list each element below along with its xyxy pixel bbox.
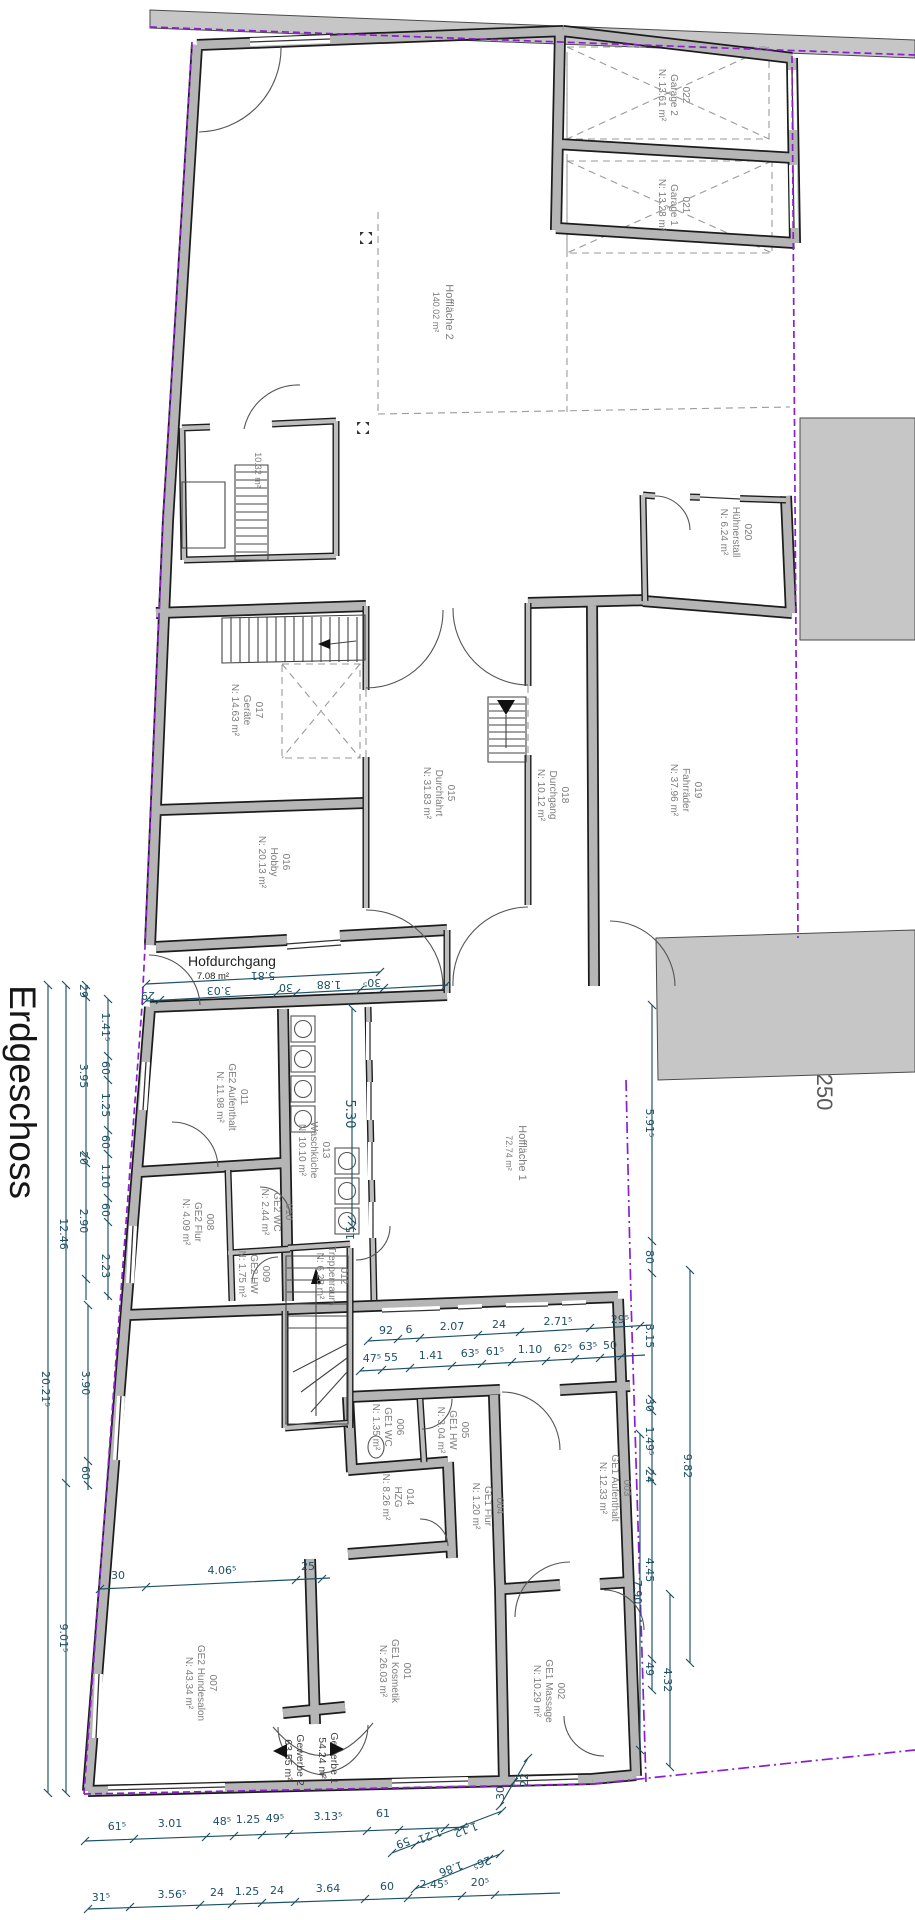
room-id: 021: [680, 197, 691, 214]
dim-value: 60: [99, 1135, 112, 1149]
dim-value: 5.81: [251, 969, 276, 982]
room-id: 009: [260, 1266, 271, 1283]
room-area: N: 2.44 m²: [259, 1189, 270, 1236]
room-id: 003: [621, 1480, 632, 1497]
room-label-019: 019 Fahrräder N: 37.96 m²: [668, 764, 703, 817]
room-id: 017: [253, 702, 264, 719]
dim-value: 61: [376, 1807, 390, 1820]
dim-value: 63⁵: [579, 1340, 597, 1353]
dim-value: 4.32: [661, 1668, 674, 1693]
page-title: Erdgeschoss: [2, 985, 43, 1199]
column-marker-1-x: [362, 234, 370, 242]
floorplan-drawing: Erdgeschoss 250 022 Garage 2 N: 13.61 m²…: [0, 0, 915, 1920]
dim-value: 20.21⁵: [39, 1371, 52, 1407]
room-id: 019: [692, 782, 703, 799]
room-area: N: 6.24 m²: [718, 509, 729, 556]
room-id: 014: [404, 1489, 415, 1506]
room-name: GE1 Massage: [543, 1659, 554, 1723]
room-name: GE1 Flur: [482, 1486, 493, 1527]
gate-double-line: [286, 940, 341, 949]
room-label-005: 005 GE1 HW N: 3.04 m²: [435, 1407, 470, 1454]
dim-value: 1.25: [235, 1885, 260, 1898]
washing-machine-drum-icon: [339, 1153, 356, 1170]
dim-value: 22: [518, 1773, 531, 1787]
room-area: N: 3.04 m²: [435, 1407, 446, 1454]
dim-value: 29: [141, 989, 155, 1002]
room-label-011: 011 GE2 Aufenthalt N: 11.98 m²: [214, 1063, 249, 1130]
room-id: 012: [338, 1268, 349, 1285]
dim-value: 1.41⁵: [99, 1013, 112, 1042]
dim-value: 3.95: [77, 1064, 90, 1089]
dim-value: 92: [379, 1324, 393, 1337]
room-name: Hühnerstall: [730, 507, 741, 558]
dim-value: 1.49⁵: [643, 1427, 656, 1456]
dim-value: 9.01⁵: [57, 1624, 70, 1653]
room-name: GE1 WC: [382, 1407, 393, 1446]
dim-value: 63⁵: [461, 1347, 479, 1360]
room-name: GE1 HW: [447, 1410, 458, 1450]
room-area: N: 6.28 m²: [314, 1253, 325, 1300]
room-area: N: 10.12 m²: [535, 769, 546, 822]
room-id: 010: [283, 1204, 294, 1221]
door-swing-arcs: [149, 46, 690, 1775]
dim-value: 3.01: [158, 1817, 183, 1830]
room-name: Garage 1: [668, 184, 679, 226]
area-label-gewerbe2: Gewerbe 2 63.55 m²: [282, 1734, 306, 1786]
dim-value: 59: [394, 1834, 412, 1851]
room-id: 015: [445, 785, 456, 802]
room-area: N: 13.61 m²: [656, 69, 667, 122]
room-label-013: 013 Waschküche N: 10.10 m²: [296, 1122, 331, 1179]
room-name: GE2 HW: [248, 1254, 259, 1294]
room-label-012: 012 Treppenraum N: 6.28 m²: [314, 1246, 349, 1306]
room-name: Geräte: [241, 695, 252, 726]
room-id: 001: [401, 1663, 412, 1680]
area-name: Gewerbe 2: [294, 1734, 306, 1786]
plan-title: Erdgeschoss: [2, 985, 43, 1199]
room-label-002: 002 GE1 Massage N: 10.29 m²: [531, 1659, 566, 1723]
area-value: 54.24 m²: [316, 1737, 328, 1779]
dim-value: 60: [99, 1203, 112, 1217]
dim-value: 47⁵: [363, 1352, 381, 1365]
dim-value: 49: [643, 1662, 656, 1676]
area-value: 63.55 m²: [282, 1739, 294, 1781]
dim-value: 1.41: [419, 1349, 444, 1362]
dim-value: 1.10: [99, 1164, 112, 1189]
room-area: N: 10.29 m²: [531, 1665, 542, 1718]
room-name: GE2 Hundesalon: [195, 1645, 206, 1721]
area-label-hofflaeche2: Hoffläche 2 140.02 m²: [431, 284, 455, 339]
dim-value: 24: [210, 1886, 224, 1899]
dim-value: 15: [344, 1226, 357, 1240]
washing-machine-drum-icon: [339, 1183, 356, 1200]
room-name: Durchgang: [547, 771, 558, 820]
entrance-arrow-gewerbe2: [273, 1744, 287, 1758]
area-value-hofdurchgang: 7.08 m²: [197, 971, 229, 982]
room-area: N: 1.20 m²: [470, 1483, 481, 1530]
dim-value: 30: [494, 1786, 507, 1800]
dim-value: 9.82: [681, 1454, 694, 1479]
room-area: N: 26.03 m²: [377, 1645, 388, 1698]
dim-value: 2.07: [440, 1320, 465, 1333]
dim-value: 3.90: [79, 1371, 92, 1396]
dim-value: 12.46: [57, 1218, 70, 1250]
room-id: 011: [238, 1089, 249, 1105]
room-name: HZG: [392, 1486, 403, 1507]
room-label-017: 017 Geräte N: 14.63 m²: [229, 684, 264, 737]
washing-machine-drum-icon: [295, 1021, 312, 1038]
area-label-abstell: 10.32 m²: [253, 452, 263, 488]
room-area: N: 12.33 m²: [597, 1462, 608, 1515]
room-id: 004: [494, 1498, 505, 1515]
room-name: Treppenraum: [326, 1246, 337, 1306]
dim-value: 3.03: [207, 984, 232, 997]
dim-value: 1.10: [518, 1343, 543, 1356]
room-label-006: 006 GE1 WC N: 1.35 m²: [370, 1404, 405, 1451]
stair-arrow-2: [497, 700, 515, 715]
room-id: 018: [559, 787, 570, 804]
dim-value: 4.06⁵: [208, 1564, 237, 1577]
dims-hundesalon: 30 4.06⁵ 25: [111, 1560, 315, 1582]
room-name: GE2 WC: [271, 1192, 282, 1231]
dim-value: 60: [79, 1466, 92, 1480]
area-name: Gewerbe 1: [328, 1732, 340, 1784]
dim-value: 29: [77, 984, 90, 998]
room-id: 002: [555, 1683, 566, 1700]
dim-value: 30: [643, 1398, 656, 1412]
room-area: N: 1.35 m²: [370, 1404, 381, 1451]
stair-arrow-1: [318, 639, 330, 649]
courtyard-dashed-boundary: [366, 58, 790, 757]
room-id: 016: [280, 854, 291, 871]
dim-value: 30: [111, 1569, 125, 1582]
room-name: GE1 Aufenthalt: [609, 1454, 620, 1521]
room-name: Hobby: [268, 848, 279, 877]
room-id: 007: [207, 1675, 218, 1692]
room-label-016: 016 Hobby N: 20.13 m²: [256, 836, 291, 889]
room-label-015: 015 Durchfahrt N: 31.83 m²: [421, 767, 456, 820]
room-label-007: 007 GE2 Hundesalon N: 43.34 m²: [183, 1645, 218, 1721]
room-label-001: 001 GE1 Kosmetik N: 26.03 m²: [377, 1639, 412, 1704]
dim-value: 1.86: [437, 1858, 464, 1879]
dims-bottom-row1: 61⁵ 3.01 48⁵ 1.25 49⁵ 3.13⁵ 61: [108, 1807, 390, 1833]
dim-value: 1.12: [452, 1819, 479, 1840]
dim-value: 1.25: [99, 1093, 112, 1118]
washing-machine-drum-icon: [295, 1081, 312, 1098]
dim-value: 3.56⁵: [158, 1888, 187, 1901]
neighbour-slab-right-mid: [656, 930, 915, 1080]
room-name: Durchfahrt: [433, 770, 444, 817]
dim-value: 2.23: [99, 1254, 112, 1279]
room-area: N: 1.75 m²: [236, 1251, 247, 1298]
room-label-020: 020 Hühnerstall N: 6.24 m²: [718, 507, 753, 558]
room-label-009: 009 GE2 HW N: 1.75 m²: [236, 1251, 271, 1298]
area-label-hofdurchgang: Hofdurchgang: [188, 953, 276, 969]
room-area: N: 37.96 m²: [668, 764, 679, 817]
dim-value: 7.90: [631, 1580, 644, 1605]
room-area: N: 11.98 m²: [214, 1071, 225, 1123]
dim-value: 55: [384, 1351, 398, 1364]
dims-court-row2: 47⁵ 55 1.41 63⁵ 61⁵ 1.10 62⁵ 63⁵ 50: [363, 1339, 617, 1365]
room-id: 006: [394, 1419, 405, 1436]
area-name: Hoffläche 2: [443, 284, 455, 339]
room-area: N: 4.09 m²: [180, 1199, 191, 1246]
washing-machine-drum-icon: [295, 1051, 312, 1068]
dim-value: 50: [603, 1339, 617, 1352]
room-area: N: 13.28 m²: [656, 179, 667, 232]
area-value: 72.74 m²: [504, 1135, 514, 1171]
neighbour-buildings: [150, 10, 915, 1080]
dim-value: 24: [643, 1469, 656, 1483]
room-name: GE1 Kosmetik: [389, 1639, 400, 1704]
dim-value: 3.13⁵: [314, 1810, 343, 1823]
dim-value: 2.71⁵: [544, 1315, 573, 1328]
dim-value: 31⁵: [92, 1891, 110, 1904]
area-label-hofflaeche1: Hoffläche 1 72.74 m²: [504, 1125, 528, 1180]
dim-value: 61⁵: [486, 1345, 504, 1358]
room-label-022: 022 Garage 2 N: 13.61 m²: [656, 69, 691, 122]
area-value: 10.32 m²: [253, 452, 263, 488]
dim-value: 24: [492, 1318, 506, 1331]
dim-value: 2.90: [77, 1209, 90, 1234]
dim-value: 24: [270, 1884, 284, 1897]
floorplan-canvas: Erdgeschoss 250 022 Garage 2 N: 13.61 m²…: [0, 0, 915, 1920]
room-id: 005: [459, 1422, 470, 1439]
dim-value: 20⁵: [471, 1876, 489, 1889]
dim-value: 3.15: [643, 1324, 656, 1349]
room-area: N: 10.10 m²: [296, 1124, 307, 1177]
room-area: N: 20.13 m²: [256, 836, 267, 889]
dim-value: 4.45: [643, 1558, 656, 1583]
dim-value: 60: [380, 1880, 394, 1893]
dim-value: 20: [77, 1151, 90, 1165]
neighbour-slab-right-upper: [800, 418, 915, 640]
dim-value: 2.45⁵: [420, 1878, 449, 1891]
dim-value: 30⁵: [363, 976, 381, 989]
room-label-008: 008 GE2 Flur N: 4.09 m²: [180, 1199, 215, 1246]
room-name: Fahrräder: [680, 768, 691, 813]
stair-winder-lines: [293, 1344, 347, 1412]
room-area: N: 8.26 m²: [380, 1474, 391, 1521]
dim-value: 60: [99, 1061, 112, 1075]
area-name: Hoffläche 1: [516, 1125, 528, 1180]
room-label-014: 014 HZG N: 8.26 m²: [380, 1474, 415, 1521]
dim-value: 5.91⁵: [643, 1109, 656, 1138]
dim-value: 6: [406, 1323, 413, 1336]
scale-value: 250: [812, 1074, 837, 1111]
room-name: Garage 2: [668, 74, 679, 116]
doors: [149, 46, 690, 1775]
room-id: 013: [320, 1142, 331, 1159]
room-id: 008: [204, 1214, 215, 1231]
dim-value: 3.64: [316, 1882, 341, 1895]
area-label-gewerbe1: Gewerbe 1 54.24 m²: [316, 1732, 340, 1784]
room-area: N: 31.83 m²: [421, 767, 432, 820]
room-id: 022: [680, 87, 691, 104]
dim-value: 1.25: [236, 1813, 261, 1826]
column-marker-2-x: [359, 424, 367, 432]
room-name: GE2 Flur: [192, 1202, 203, 1243]
room-label-018: 018 Durchgang N: 10.12 m²: [535, 769, 570, 822]
area-value: 140.02 m²: [431, 292, 441, 333]
dim-value: 5.30: [342, 1100, 357, 1129]
dim-value: 29⁵: [611, 1313, 629, 1326]
room-name: Waschküche: [308, 1122, 319, 1179]
dim-value: 48⁵: [213, 1815, 231, 1828]
scale-label: 250: [812, 1074, 837, 1111]
dim-value: 30: [279, 981, 293, 994]
dim-value: 26⁵: [471, 1853, 493, 1872]
dim-value: 1.88: [317, 978, 342, 991]
dim-value: 62⁵: [554, 1342, 572, 1355]
dim-value: 25: [301, 1560, 315, 1573]
dims-bottom-row2: 31⁵ 3.56⁵ 24 1.25 24 3.64 60 2.45⁵ 20⁵: [92, 1876, 489, 1904]
room-area: N: 14.63 m²: [229, 684, 240, 737]
room-area: N: 43.34 m²: [183, 1657, 194, 1710]
room-label-021: 021 Garage 1 N: 13.28 m²: [656, 179, 691, 232]
dim-value: 80: [643, 1250, 656, 1264]
room-id: 020: [742, 524, 753, 541]
dim-value: 61⁵: [108, 1820, 126, 1833]
dim-value: 49⁵: [266, 1812, 284, 1825]
room-name: GE2 Aufenthalt: [226, 1063, 237, 1130]
